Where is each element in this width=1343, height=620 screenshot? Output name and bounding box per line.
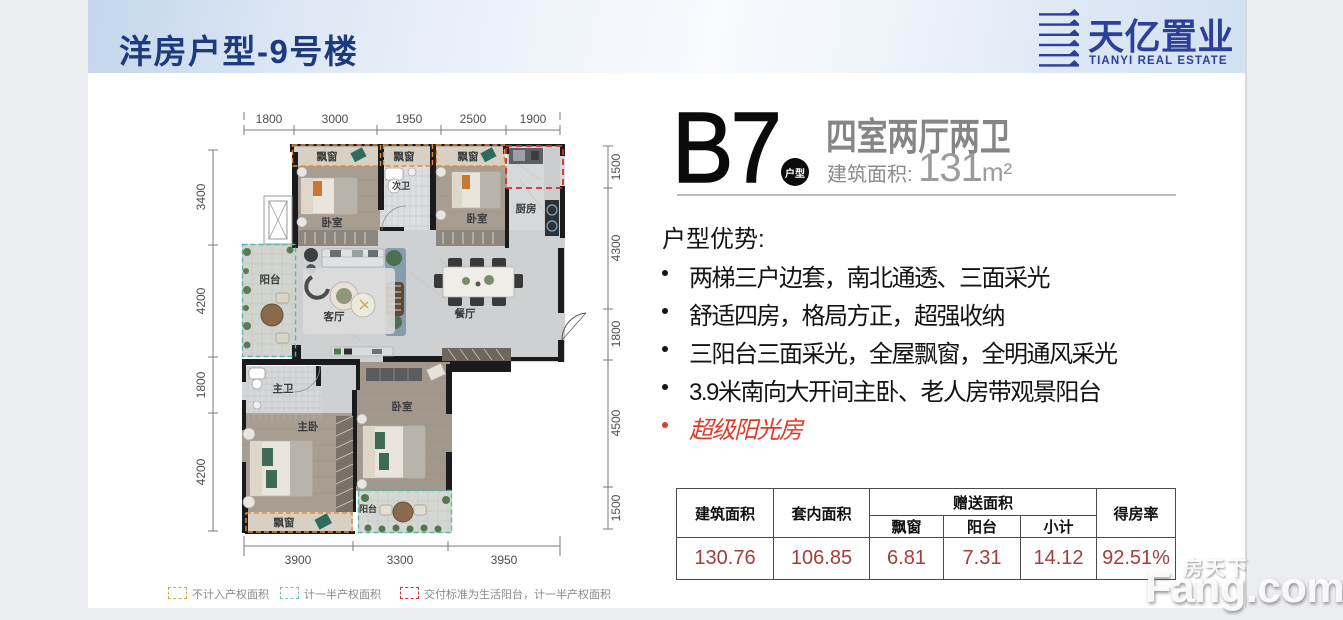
svg-text:2500: 2500 — [460, 112, 487, 126]
svg-text:3950: 3950 — [491, 553, 518, 567]
svg-text:1900: 1900 — [520, 112, 547, 126]
svg-text:厨房: 厨房 — [516, 202, 537, 215]
svg-text:4500: 4500 — [609, 409, 623, 436]
svg-text:主卧: 主卧 — [298, 420, 319, 433]
svg-text:3300: 3300 — [387, 553, 414, 567]
svg-text:卧室: 卧室 — [392, 400, 413, 413]
svg-text:4300: 4300 — [609, 234, 623, 261]
svg-text:飘窗: 飘窗 — [458, 150, 479, 163]
svg-text:卧室: 卧室 — [467, 212, 488, 225]
svg-text:3900: 3900 — [285, 553, 312, 567]
svg-text:3400: 3400 — [194, 183, 208, 210]
svg-text:餐厅: 餐厅 — [454, 307, 476, 320]
svg-text:飘窗: 飘窗 — [394, 150, 415, 163]
svg-text:主卫: 主卫 — [273, 382, 294, 395]
svg-text:阳台: 阳台 — [359, 503, 377, 514]
svg-text:1950: 1950 — [396, 112, 423, 126]
svg-text:阳台: 阳台 — [260, 273, 281, 286]
svg-text:客厅: 客厅 — [323, 310, 345, 323]
svg-text:飘窗: 飘窗 — [274, 516, 295, 529]
svg-text:1500: 1500 — [609, 494, 623, 521]
svg-text:1800: 1800 — [194, 371, 208, 398]
svg-text:4200: 4200 — [194, 287, 208, 314]
svg-text:3000: 3000 — [322, 112, 349, 126]
svg-text:天亿置业: 天亿置业 — [1088, 16, 1234, 57]
svg-text:次卫: 次卫 — [392, 180, 410, 191]
svg-text:飘窗: 飘窗 — [317, 150, 338, 163]
svg-text:1800: 1800 — [256, 112, 283, 126]
svg-text:4200: 4200 — [194, 458, 208, 485]
svg-text:1500: 1500 — [609, 153, 623, 180]
svg-text:卧室: 卧室 — [322, 216, 343, 229]
svg-text:1800: 1800 — [609, 320, 623, 347]
